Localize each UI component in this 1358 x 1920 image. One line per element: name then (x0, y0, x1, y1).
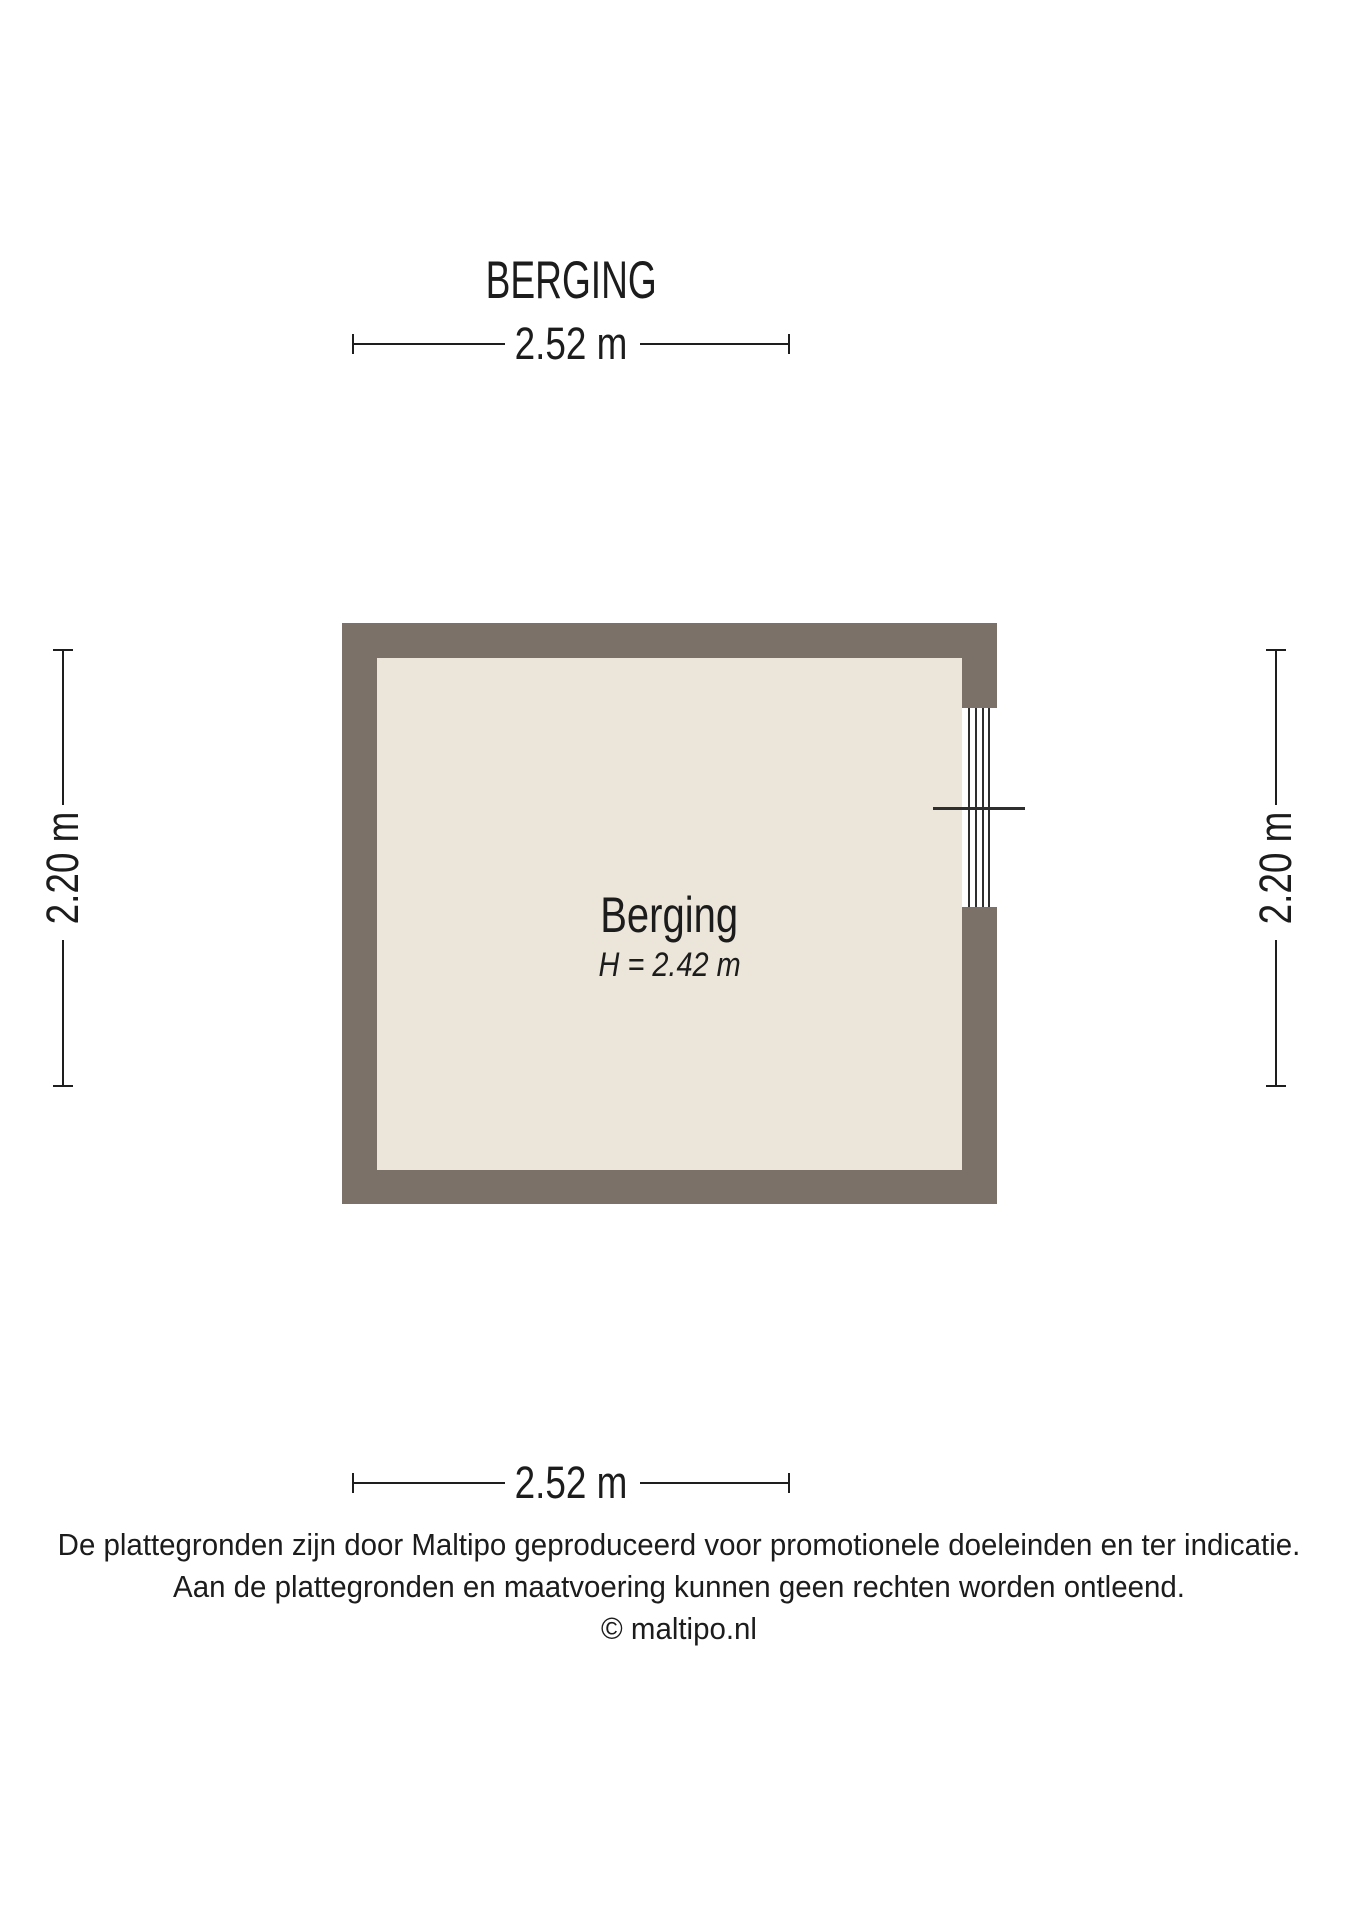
disclaimer-line-1: De plattegronden zijn door Maltipo gepro… (34, 1524, 1324, 1566)
dimension-line (1275, 649, 1277, 805)
window-cross-line-icon (933, 807, 1025, 810)
dimension-line (62, 940, 64, 1087)
dimension-line (352, 1482, 505, 1484)
dimension-left: 2.20 m (41, 649, 85, 1087)
dimension-line (640, 1482, 790, 1484)
dimension-tick (788, 1473, 790, 1493)
room-name-text: Berging (601, 886, 739, 944)
disclaimer-line-2: Aan de plattegronden en maatvoering kunn… (34, 1566, 1324, 1608)
dimension-label-right: 2.20 m (1250, 812, 1302, 925)
page-title: BERGING (171, 250, 971, 311)
floorplan-page: BERGING 2.52 m 2.20 m 2.20 m Bergi (0, 0, 1358, 1920)
dimension-tick (1266, 1085, 1286, 1087)
copyright-line: © maltipo.nl (34, 1608, 1324, 1650)
room-height-text: H = 2.42 m (598, 946, 740, 985)
room-name-label: Berging (377, 886, 962, 944)
dimension-line (62, 649, 64, 805)
dimension-right: 2.20 m (1254, 649, 1298, 1087)
dimension-label-top: 2.52 m (515, 318, 628, 370)
dimension-top: 2.52 m (352, 322, 790, 366)
dimension-tick (53, 1085, 73, 1087)
dimension-line (640, 343, 790, 345)
dimension-tick (788, 334, 790, 354)
page-title-text: BERGING (485, 250, 656, 311)
room-height-label: H = 2.42 m (377, 946, 962, 985)
footer-disclaimer: De plattegronden zijn door Maltipo gepro… (0, 1524, 1358, 1650)
dimension-line (352, 343, 505, 345)
dimension-label-left: 2.20 m (37, 812, 89, 925)
dimension-bottom: 2.52 m (352, 1461, 790, 1505)
dimension-label-bottom: 2.52 m (515, 1457, 628, 1509)
dimension-line (1275, 940, 1277, 1087)
